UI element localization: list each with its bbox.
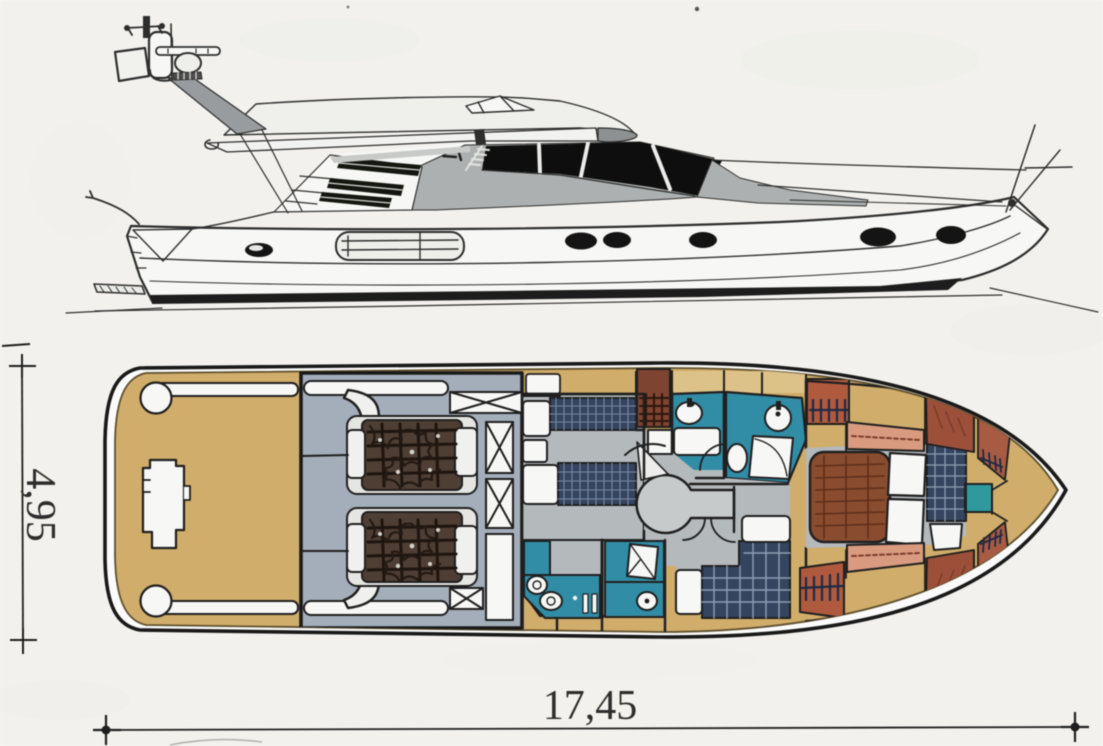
svg-text:4,95: 4,95 — [17, 468, 63, 542]
svg-text:17,45: 17,45 — [543, 683, 638, 729]
